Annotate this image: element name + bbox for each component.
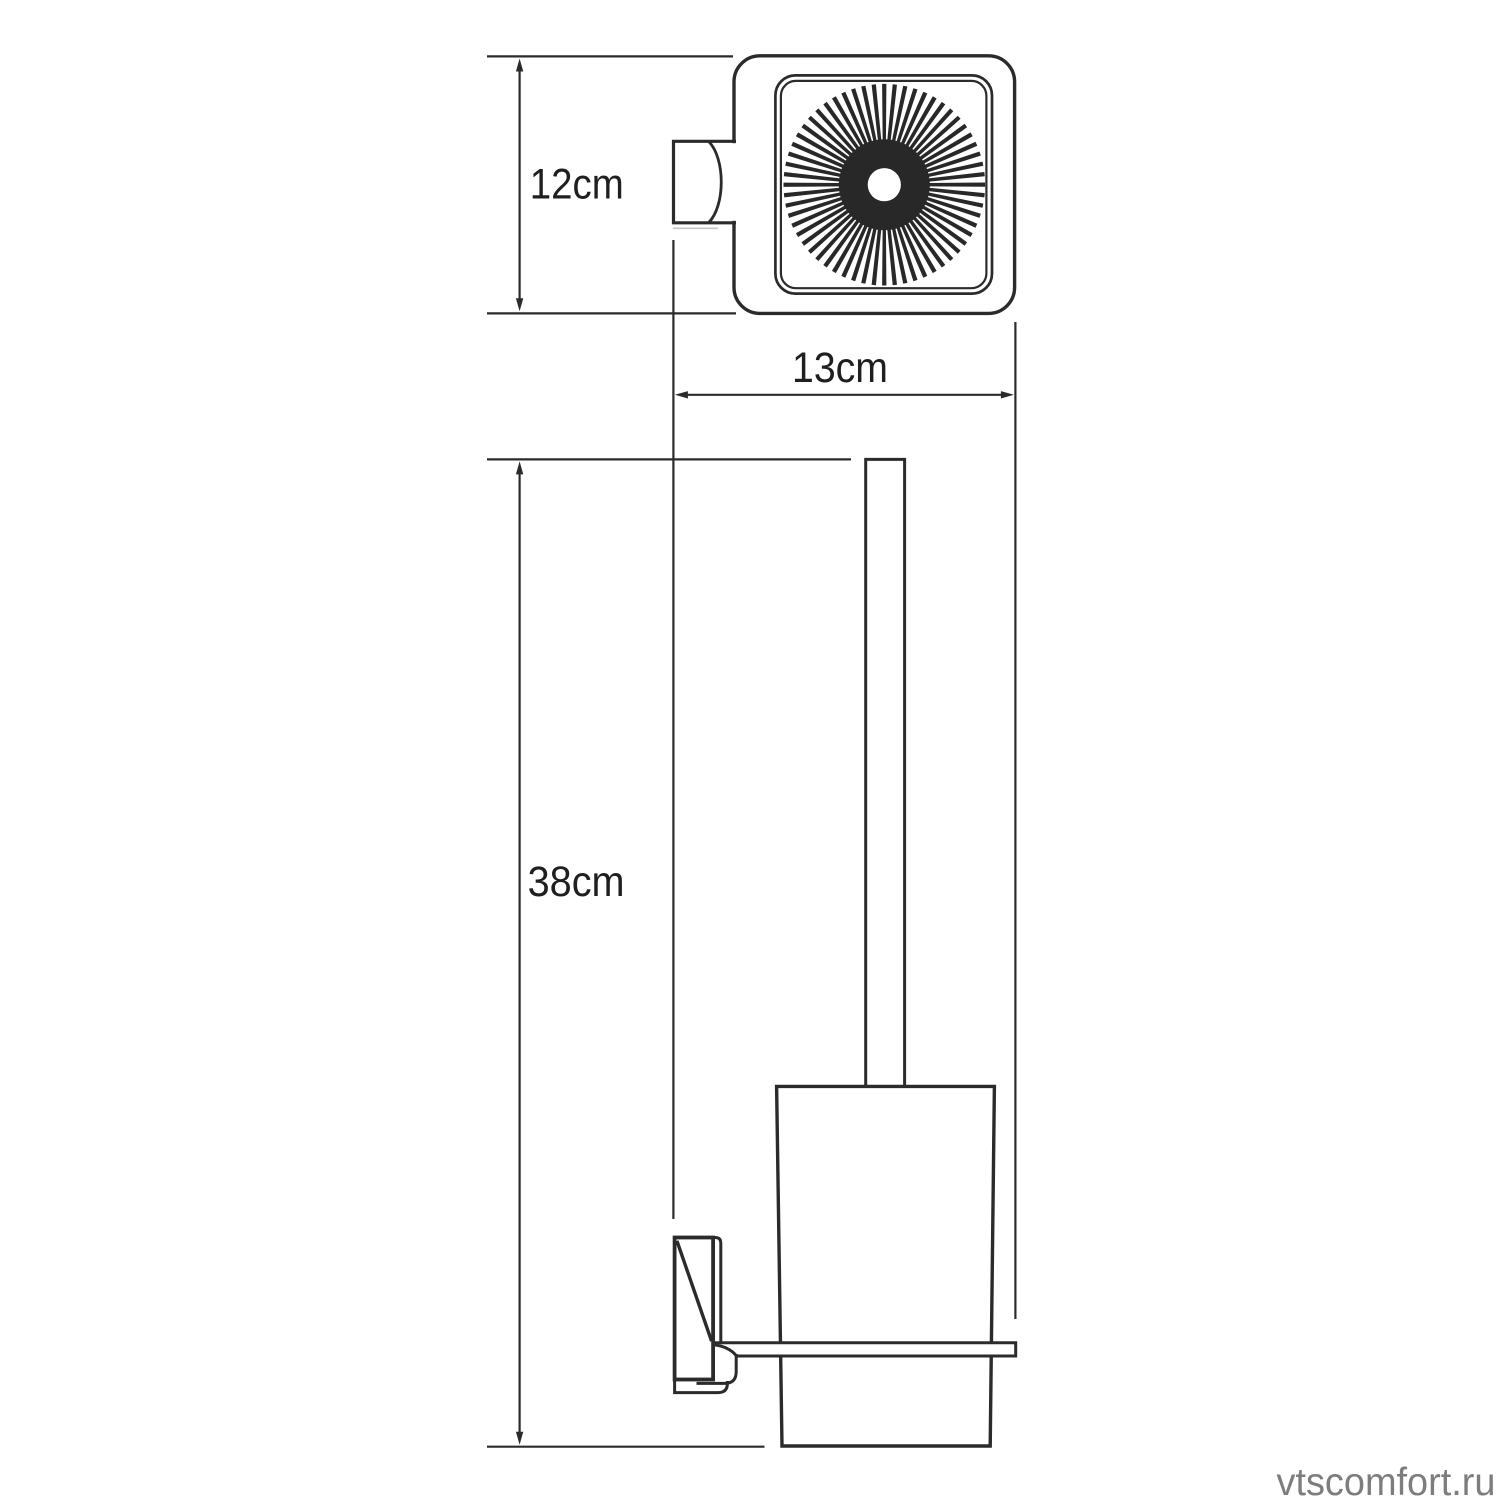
svg-text:13cm: 13cm <box>792 345 888 392</box>
svg-text:vtscomfort.ru: vtscomfort.ru <box>1277 1461 1496 1504</box>
svg-text:12cm: 12cm <box>530 162 624 209</box>
svg-text:38cm: 38cm <box>528 859 625 906</box>
